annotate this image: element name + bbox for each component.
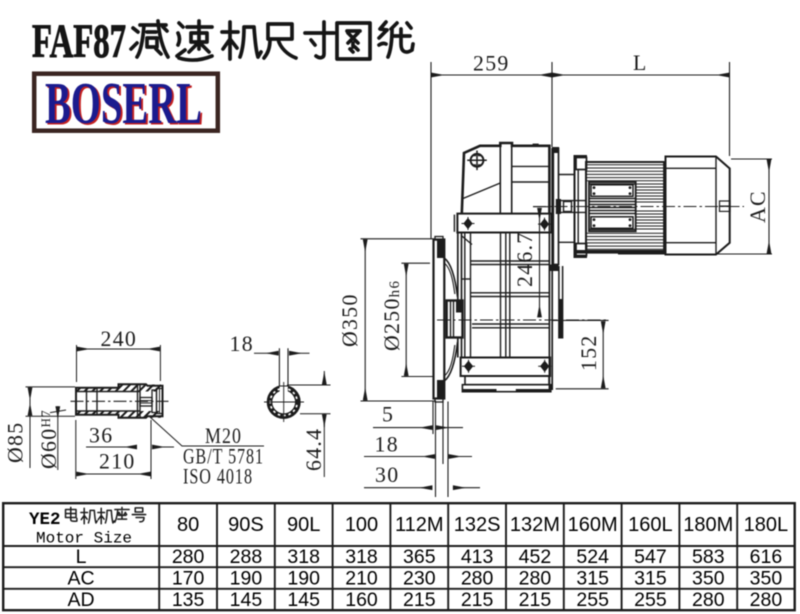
svg-text:315: 315 — [576, 568, 609, 590]
svg-text:160M: 160M — [568, 514, 618, 536]
svg-text:L: L — [633, 51, 648, 75]
svg-text:280: 280 — [692, 589, 725, 611]
svg-text:365: 365 — [403, 546, 436, 568]
svg-text:350: 350 — [750, 568, 783, 590]
svg-text:210: 210 — [99, 450, 136, 474]
svg-text:132M: 132M — [510, 514, 560, 536]
svg-text:BOSERL: BOSERL — [45, 70, 202, 136]
svg-text:Motor Size: Motor Size — [36, 530, 132, 548]
svg-text:Ø85: Ø85 — [4, 422, 28, 463]
svg-text:160L: 160L — [628, 514, 673, 536]
svg-text:318: 318 — [345, 546, 378, 568]
svg-text:255: 255 — [576, 589, 609, 611]
svg-text:5: 5 — [382, 403, 394, 427]
svg-text:AC: AC — [67, 568, 94, 590]
svg-text:240: 240 — [101, 327, 138, 351]
svg-text:246.7: 246.7 — [513, 231, 537, 287]
svg-text:259: 259 — [473, 52, 510, 76]
svg-text:YE2: YE2 — [29, 510, 61, 530]
svg-text:210: 210 — [345, 568, 378, 590]
svg-text:255: 255 — [634, 589, 667, 611]
svg-text:616: 616 — [750, 546, 783, 568]
svg-text:524: 524 — [576, 546, 609, 568]
svg-text:18: 18 — [230, 332, 254, 356]
svg-text:180L: 180L — [744, 514, 789, 536]
svg-text:547: 547 — [634, 546, 667, 568]
svg-text:AD: AD — [67, 589, 94, 611]
svg-text:30: 30 — [375, 463, 399, 487]
svg-text:288: 288 — [230, 546, 263, 568]
svg-text:145: 145 — [230, 589, 263, 611]
svg-text:413: 413 — [461, 546, 494, 568]
svg-text:64.4: 64.4 — [302, 428, 326, 471]
svg-text:180M: 180M — [683, 514, 733, 536]
svg-text:215: 215 — [519, 589, 552, 611]
svg-text:135: 135 — [172, 589, 205, 611]
svg-text:145: 145 — [287, 589, 320, 611]
svg-text:90S: 90S — [228, 514, 264, 536]
svg-text:190: 190 — [230, 568, 263, 590]
svg-text:230: 230 — [403, 568, 436, 590]
svg-text:132S: 132S — [454, 514, 501, 536]
svg-text:Ø350: Ø350 — [338, 293, 362, 347]
svg-text:350: 350 — [692, 568, 725, 590]
svg-text:152: 152 — [577, 334, 601, 371]
svg-text:280: 280 — [461, 568, 494, 590]
svg-text:100: 100 — [345, 514, 378, 536]
svg-text:18: 18 — [375, 433, 399, 457]
svg-text:583: 583 — [692, 546, 725, 568]
svg-text:160: 160 — [345, 589, 378, 611]
svg-text:AC: AC — [746, 190, 770, 223]
svg-text:280: 280 — [519, 568, 552, 590]
svg-text:ISO 4018: ISO 4018 — [183, 465, 253, 489]
svg-text:452: 452 — [519, 546, 552, 568]
svg-text:318: 318 — [287, 546, 320, 568]
svg-text:36: 36 — [89, 424, 113, 448]
svg-text:215: 215 — [461, 589, 494, 611]
svg-text:80: 80 — [177, 514, 199, 536]
svg-text:280: 280 — [172, 546, 205, 568]
svg-text:L: L — [76, 546, 87, 568]
svg-text:112M: 112M — [395, 514, 444, 536]
svg-text:FAF87: FAF87 — [32, 15, 126, 68]
svg-text:280: 280 — [750, 589, 783, 611]
svg-text:90L: 90L — [287, 514, 320, 536]
svg-text:215: 215 — [403, 589, 436, 611]
svg-text:170: 170 — [172, 568, 205, 590]
svg-text:315: 315 — [634, 568, 667, 590]
svg-text:190: 190 — [287, 568, 320, 590]
